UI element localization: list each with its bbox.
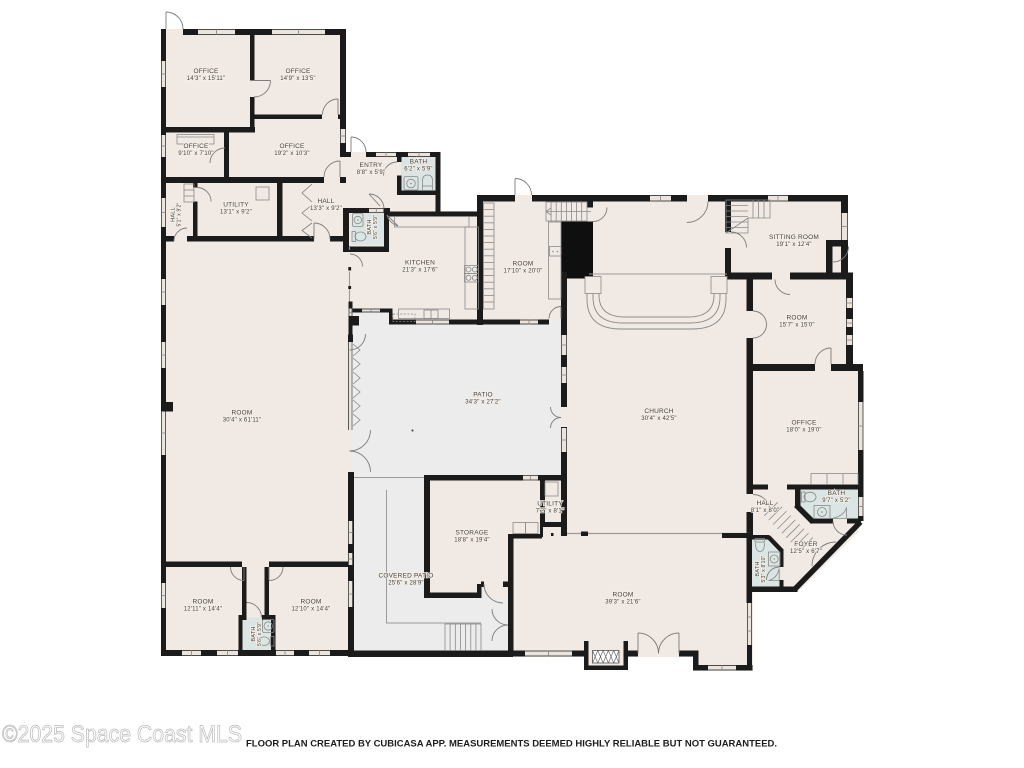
svg-text:ROOM: ROOM bbox=[786, 315, 807, 322]
svg-text:BATH: BATH bbox=[828, 490, 846, 497]
svg-text:HALL: HALL bbox=[317, 198, 334, 205]
svg-text:17'10" x 20'0": 17'10" x 20'0" bbox=[503, 269, 542, 275]
svg-text:19'2" x 10'3": 19'2" x 10'3" bbox=[274, 151, 310, 157]
svg-text:13'1" x 9'2": 13'1" x 9'2" bbox=[220, 210, 252, 216]
svg-text:18'8" x 19'4": 18'8" x 19'4" bbox=[454, 538, 490, 544]
svg-text:OFFICE: OFFICE bbox=[279, 143, 304, 150]
svg-text:OFFICE: OFFICE bbox=[285, 68, 310, 75]
svg-text:ROOM: ROOM bbox=[300, 599, 321, 606]
svg-text:25'6" x 28'9": 25'6" x 28'9" bbox=[388, 581, 424, 587]
svg-text:12'11" x 14'4": 12'11" x 14'4" bbox=[184, 607, 223, 613]
svg-text:ENTRY: ENTRY bbox=[360, 162, 383, 169]
svg-text:34'3" x 27'2": 34'3" x 27'2" bbox=[465, 400, 501, 406]
svg-text:ROOM: ROOM bbox=[512, 261, 533, 268]
svg-text:FOYER: FOYER bbox=[794, 541, 817, 548]
svg-text:KITCHEN: KITCHEN bbox=[405, 260, 435, 267]
svg-text:7'2" x 8'1": 7'2" x 8'1" bbox=[536, 509, 564, 515]
svg-text:30'4" x 42'5": 30'4" x 42'5" bbox=[641, 416, 677, 422]
svg-text:SITTING ROOM: SITTING ROOM bbox=[769, 234, 819, 241]
svg-text:BATH: BATH bbox=[410, 159, 428, 166]
svg-text:ROOM: ROOM bbox=[192, 599, 213, 606]
svg-text:CHURCH: CHURCH bbox=[644, 408, 673, 415]
svg-text:5'3" x 8'10": 5'3" x 8'10" bbox=[761, 555, 767, 582]
svg-text:PATIO: PATIO bbox=[473, 392, 493, 399]
svg-text:18'0" x 19'0": 18'0" x 19'0" bbox=[786, 428, 822, 434]
svg-text:8'1" x 8'0": 8'1" x 8'0" bbox=[751, 508, 779, 514]
svg-text:8'8" x 5'9": 8'8" x 5'9" bbox=[357, 170, 385, 176]
svg-text:12'5" x 6'7": 12'5" x 6'7" bbox=[790, 549, 822, 555]
svg-text:15'7" x 15'0": 15'7" x 15'0" bbox=[779, 323, 815, 329]
svg-text:FLOOR PLAN CREATED BY CUBICASA: FLOOR PLAN CREATED BY CUBICASA APP. MEAS… bbox=[246, 738, 777, 749]
svg-text:30'4" x 61'11": 30'4" x 61'11" bbox=[223, 418, 262, 424]
svg-text:UTILITY: UTILITY bbox=[537, 501, 563, 508]
svg-text:OFFICE: OFFICE bbox=[791, 420, 816, 427]
svg-text:9'10" x 7'10": 9'10" x 7'10" bbox=[178, 151, 214, 157]
svg-text:5'6" x 5'9": 5'6" x 5'9" bbox=[373, 215, 379, 239]
svg-text:13'3" x 9'2": 13'3" x 9'2" bbox=[310, 206, 342, 212]
svg-text:12'10" x 14'4": 12'10" x 14'4" bbox=[291, 607, 330, 613]
svg-text:OFFICE: OFFICE bbox=[193, 68, 218, 75]
svg-text:COVERED PATIO: COVERED PATIO bbox=[378, 573, 433, 580]
svg-text:21'3" x 17'6": 21'3" x 17'6" bbox=[402, 268, 438, 274]
svg-text:39'3" x 21'6": 39'3" x 21'6" bbox=[605, 600, 641, 606]
svg-text:14'9" x 13'5": 14'9" x 13'5" bbox=[280, 76, 316, 82]
svg-text:14'3" x 15'11": 14'3" x 15'11" bbox=[187, 76, 226, 82]
svg-text:ROOM: ROOM bbox=[231, 410, 252, 417]
svg-text:5'1" x 9'2": 5'1" x 9'2" bbox=[177, 202, 183, 226]
svg-text:STORAGE: STORAGE bbox=[455, 530, 489, 537]
svg-text:5'6" x 5'9": 5'6" x 5'9" bbox=[257, 622, 263, 646]
svg-text:©2025 Space Coast MLS: ©2025 Space Coast MLS bbox=[2, 721, 242, 748]
svg-text:OFFICE: OFFICE bbox=[183, 143, 208, 150]
svg-text:HALL: HALL bbox=[756, 500, 773, 507]
svg-text:ROOM: ROOM bbox=[612, 592, 633, 599]
svg-text:9'7" x 5'2": 9'7" x 5'2" bbox=[822, 498, 850, 504]
svg-text:6'2" x 5'9": 6'2" x 5'9" bbox=[404, 167, 432, 173]
svg-text:UTILITY: UTILITY bbox=[223, 202, 249, 209]
svg-text:19'1" x 12'4": 19'1" x 12'4" bbox=[776, 242, 812, 248]
